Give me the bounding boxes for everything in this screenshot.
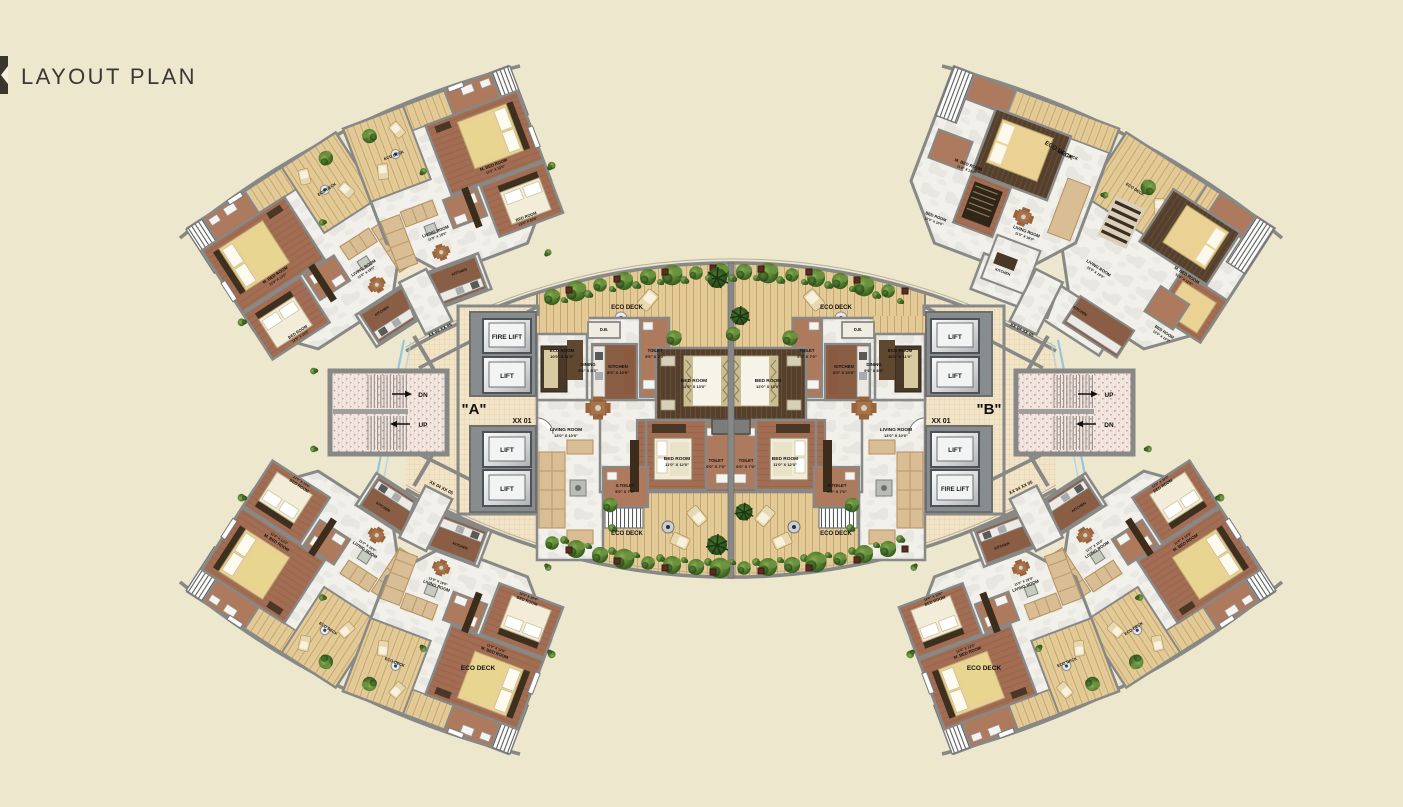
svg-text:DN: DN (418, 392, 428, 399)
svg-text:ECO ROOM: ECO ROOM (888, 348, 913, 353)
svg-text:LIFT: LIFT (500, 486, 514, 493)
svg-text:LIFT: LIFT (500, 447, 514, 454)
svg-text:KITCHEN: KITCHEN (834, 364, 854, 369)
svg-text:ECO DECK: ECO DECK (611, 305, 643, 311)
svg-text:D.B.: D.B. (854, 327, 862, 332)
svg-text:9'6" X 8'3": 9'6" X 8'3" (578, 368, 598, 373)
svg-text:10'0" X 11'0": 10'0" X 11'0" (550, 354, 574, 359)
svg-text:LAYOUT PLAN: LAYOUT PLAN (21, 64, 197, 89)
svg-text:13'0" X 10'0": 13'0" X 10'0" (884, 433, 908, 438)
svg-text:S.TOILET: S.TOILET (828, 483, 847, 488)
svg-text:FIRE LIFT: FIRE LIFT (492, 334, 522, 341)
svg-text:ECO DECK: ECO DECK (820, 305, 852, 311)
svg-text:TOILET: TOILET (709, 458, 724, 463)
svg-text:5'0" X 7'0": 5'0" X 7'0" (645, 354, 665, 359)
svg-text:13'0" X 10'0": 13'0" X 10'0" (554, 433, 578, 438)
svg-text:"A": "A" (461, 401, 486, 418)
svg-text:8'0" X 10'0": 8'0" X 10'0" (607, 370, 629, 375)
svg-text:ECO DECK: ECO DECK (611, 531, 643, 537)
svg-text:KITCHEN: KITCHEN (608, 364, 628, 369)
svg-text:6'0" X 7'0": 6'0" X 7'0" (736, 464, 756, 469)
svg-text:TOILET: TOILET (800, 348, 815, 353)
svg-text:TOILET: TOILET (739, 458, 754, 463)
svg-text:5'0" X 7'0": 5'0" X 7'0" (615, 489, 635, 494)
svg-text:DINING: DINING (866, 362, 882, 367)
svg-text:DINING: DINING (580, 362, 596, 367)
svg-text:9'6" X 8'3": 9'6" X 8'3" (864, 368, 884, 373)
svg-text:D.B.: D.B. (600, 327, 608, 332)
svg-text:DN: DN (1104, 422, 1114, 429)
svg-text:12'0" X 13'0": 12'0" X 13'0" (756, 384, 780, 389)
svg-text:LIFT: LIFT (500, 373, 514, 380)
svg-text:LIFT: LIFT (948, 447, 962, 454)
svg-text:FIRE LIFT: FIRE LIFT (941, 487, 969, 493)
svg-text:UP: UP (418, 422, 428, 429)
svg-text:ECO ROOM: ECO ROOM (550, 348, 575, 353)
svg-text:ECO DECK: ECO DECK (820, 531, 852, 537)
svg-text:12'0" X 13'0": 12'0" X 13'0" (682, 384, 706, 389)
svg-text:TOILET: TOILET (648, 348, 663, 353)
svg-text:10'0" X 11'0": 10'0" X 11'0" (888, 354, 912, 359)
svg-text:S.TOILET: S.TOILET (616, 483, 635, 488)
svg-text:5'0" X 7'0": 5'0" X 7'0" (827, 489, 847, 494)
svg-text:11'0" X 12'0": 11'0" X 12'0" (773, 462, 797, 467)
svg-text:"B": "B" (976, 401, 1001, 418)
svg-text:11'0" X 12'0": 11'0" X 12'0" (665, 462, 689, 467)
svg-text:UP: UP (1104, 392, 1114, 399)
svg-text:XX 01: XX 01 (931, 418, 950, 425)
svg-text:XX 01: XX 01 (512, 418, 531, 425)
svg-text:6'0" X 7'0": 6'0" X 7'0" (706, 464, 726, 469)
svg-text:8'0" X 10'0": 8'0" X 10'0" (833, 370, 855, 375)
svg-text:LIFT: LIFT (948, 334, 962, 341)
svg-text:LIFT: LIFT (948, 373, 962, 380)
svg-text:ECO DECK: ECO DECK (461, 665, 496, 672)
svg-text:5'0" X 7'0": 5'0" X 7'0" (797, 354, 817, 359)
svg-text:ECO DECK: ECO DECK (967, 665, 1002, 672)
